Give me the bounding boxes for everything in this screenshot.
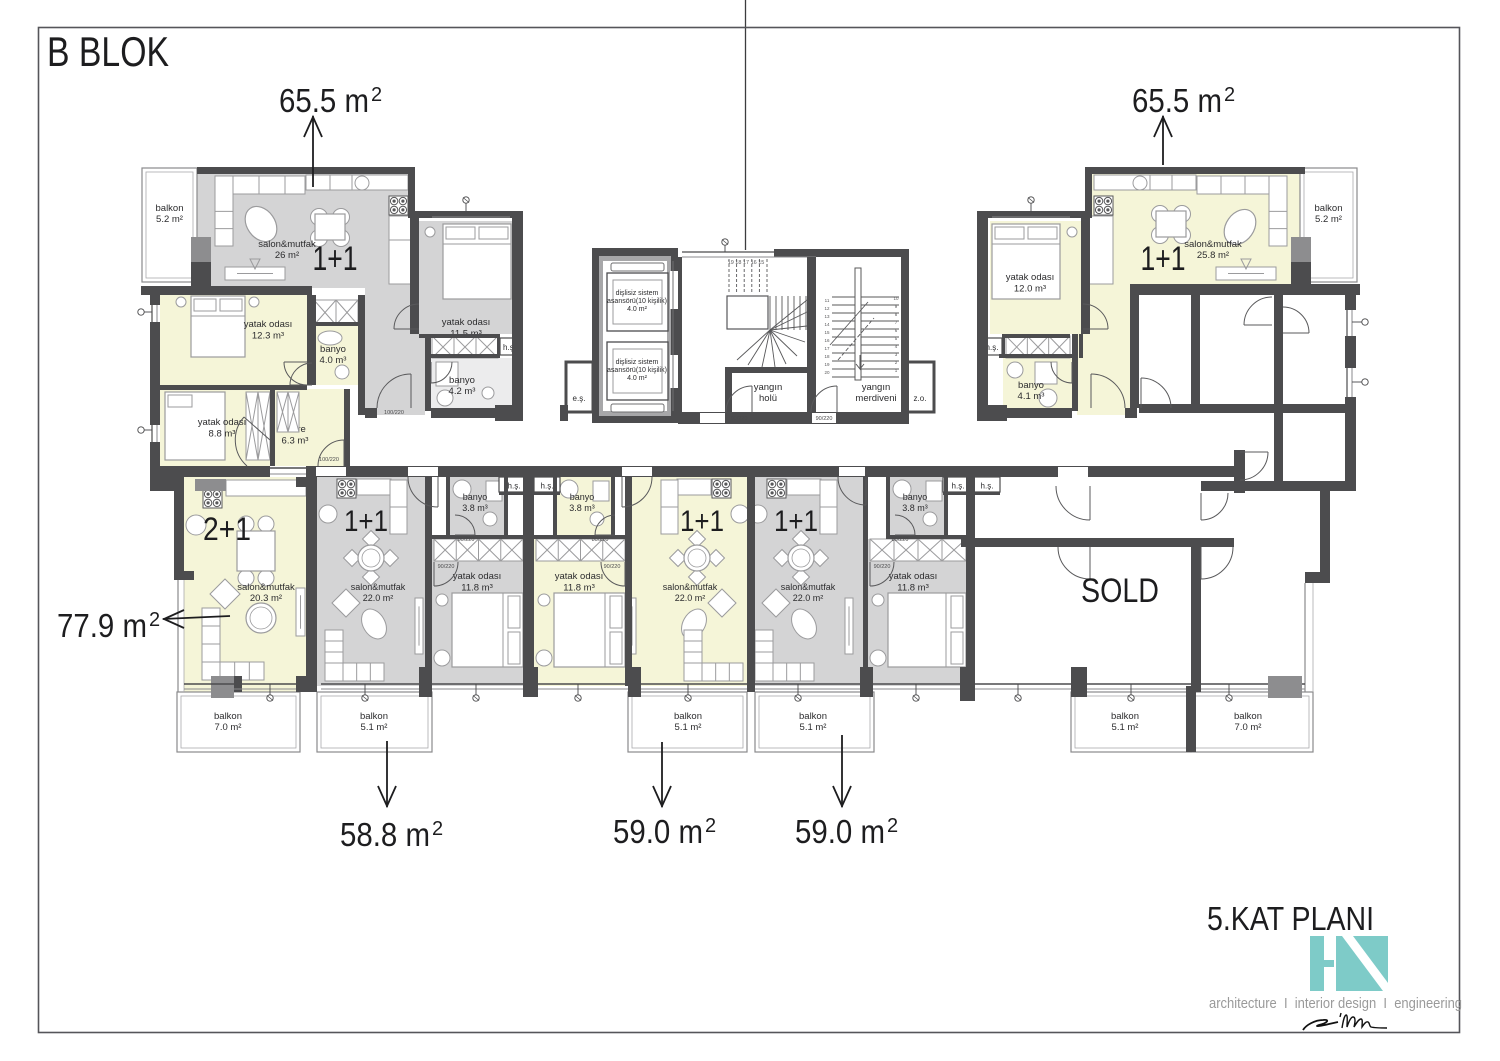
svg-text:yangın: yangın	[862, 382, 891, 393]
svg-text:26 m²: 26 m²	[275, 250, 299, 261]
svg-text:11.8 m³: 11.8 m³	[563, 583, 595, 594]
svg-text:17: 17	[824, 346, 830, 351]
svg-text:3.8 m³: 3.8 m³	[569, 503, 595, 513]
svg-text:59.0 m: 59.0 m	[795, 813, 885, 850]
svg-text:h.ş.: h.ş.	[981, 482, 994, 491]
svg-text:20.3 m²: 20.3 m²	[250, 593, 282, 604]
svg-text:20: 20	[824, 370, 830, 375]
svg-text:12.0 m³: 12.0 m³	[1014, 284, 1046, 295]
svg-text:16: 16	[824, 338, 830, 343]
svg-text:dişlisiz sistem: dişlisiz sistem	[616, 359, 659, 366]
svg-text:4.1 m³: 4.1 m³	[1018, 391, 1045, 402]
svg-text:58.8 m: 58.8 m	[340, 816, 430, 853]
svg-text:balkon: balkon	[799, 711, 827, 722]
svg-text:19 18 17 16 15: 19 18 17 16 15	[728, 260, 765, 266]
svg-text:balkon: balkon	[1234, 711, 1262, 722]
svg-text:90/220: 90/220	[731, 416, 748, 422]
svg-text:salon&mutfak: salon&mutfak	[258, 239, 316, 250]
svg-text:banyo: banyo	[570, 492, 595, 502]
svg-text:5.KAT PLANI: 5.KAT PLANI	[1207, 900, 1374, 937]
svg-text:2: 2	[432, 818, 443, 840]
svg-text:4.0 m²: 4.0 m²	[627, 306, 648, 313]
svg-text:yatak odası: yatak odası	[453, 571, 502, 582]
svg-text:B BLOK: B BLOK	[47, 28, 169, 75]
svg-text:2: 2	[1224, 84, 1235, 106]
svg-text:90/220: 90/220	[816, 416, 833, 422]
svg-text:yatak odası: yatak odası	[889, 571, 938, 582]
svg-text:salon&mutfak: salon&mutfak	[351, 582, 406, 592]
svg-text:4.0 m³: 4.0 m³	[320, 355, 347, 366]
svg-text:banyo: banyo	[320, 344, 346, 355]
svg-text:22.0 m²: 22.0 m²	[793, 593, 824, 603]
svg-text:80/220: 80/220	[892, 537, 909, 543]
svg-text:14: 14	[824, 322, 830, 327]
svg-text:12.3 m³: 12.3 m³	[252, 331, 284, 342]
svg-text:z.o.: z.o.	[914, 394, 927, 403]
svg-text:asansörü(10 kişilik): asansörü(10 kişilik)	[607, 298, 667, 305]
svg-text:architecture I interior desi: architecture I interior design I enginee…	[1209, 996, 1462, 1012]
svg-text:6.3 m³: 6.3 m³	[282, 436, 309, 447]
svg-text:balkon: balkon	[360, 711, 388, 722]
svg-text:2+1: 2+1	[203, 511, 251, 547]
svg-text:90/220: 90/220	[874, 564, 891, 570]
svg-text:5.2 m²: 5.2 m²	[156, 214, 183, 225]
svg-text:5.1 m²: 5.1 m²	[1112, 722, 1139, 733]
svg-text:salon&mutfak: salon&mutfak	[781, 582, 836, 592]
svg-text:banyo: banyo	[463, 492, 488, 502]
svg-text:salon&mutfak: salon&mutfak	[1184, 239, 1242, 250]
svg-text:11.8 m³: 11.8 m³	[461, 583, 493, 594]
svg-text:yatak odası: yatak odası	[1006, 272, 1055, 283]
svg-text:e.ş.: e.ş.	[573, 394, 586, 403]
svg-text:100/220: 100/220	[384, 410, 404, 416]
svg-text:salon&mutfak: salon&mutfak	[237, 582, 295, 593]
svg-text:5.1 m²: 5.1 m²	[361, 722, 388, 733]
svg-text:yatak odası: yatak odası	[198, 417, 247, 428]
svg-text:balkon: balkon	[1315, 203, 1343, 214]
svg-text:11.8 m³: 11.8 m³	[897, 583, 929, 594]
svg-text:h.ş.: h.ş.	[952, 482, 965, 491]
svg-text:balkon: balkon	[214, 711, 242, 722]
svg-text:18: 18	[824, 354, 830, 359]
svg-text:yatak odası: yatak odası	[244, 319, 293, 330]
svg-text:4.2 m³: 4.2 m³	[449, 386, 476, 397]
svg-text:12: 12	[824, 306, 830, 311]
svg-text:yangın: yangın	[754, 382, 783, 393]
svg-text:7.0 m²: 7.0 m²	[1235, 722, 1262, 733]
svg-text:banyo: banyo	[1018, 380, 1044, 391]
svg-text:25.8 m²: 25.8 m²	[1197, 250, 1229, 261]
svg-text:dişlisiz sistem: dişlisiz sistem	[616, 290, 659, 297]
svg-text:19: 19	[824, 362, 830, 367]
svg-text:1+1: 1+1	[774, 505, 818, 538]
svg-text:90/220: 90/220	[604, 564, 621, 570]
svg-text:8.8 m³: 8.8 m³	[209, 429, 236, 440]
svg-text:yatak odası: yatak odası	[442, 317, 491, 328]
svg-text:balkon: balkon	[156, 203, 184, 214]
svg-text:SOLD: SOLD	[1081, 572, 1159, 610]
svg-text:4.0 m²: 4.0 m²	[627, 375, 648, 382]
svg-text:80/220: 80/220	[592, 537, 609, 543]
svg-text:1+1: 1+1	[1141, 240, 1186, 278]
svg-text:1+1: 1+1	[313, 240, 358, 278]
svg-text:3.8 m³: 3.8 m³	[462, 503, 488, 513]
svg-text:10: 10	[893, 296, 899, 301]
svg-text:2: 2	[149, 609, 160, 631]
svg-text:90/220: 90/220	[438, 564, 455, 570]
svg-text:banyo: banyo	[903, 492, 928, 502]
svg-text:22.0 m²: 22.0 m²	[675, 593, 706, 603]
svg-text:15: 15	[824, 330, 830, 335]
svg-text:65.5 m: 65.5 m	[1132, 82, 1222, 119]
svg-text:merdiveni: merdiveni	[855, 393, 896, 404]
svg-text:2: 2	[371, 84, 382, 106]
svg-text:h.ş.: h.ş.	[508, 482, 521, 491]
svg-text:1+1: 1+1	[344, 505, 388, 538]
svg-text:asansörü(10 kişilik): asansörü(10 kişilik)	[607, 367, 667, 374]
svg-text:80/220: 80/220	[458, 537, 475, 543]
svg-text:22.0 m²: 22.0 m²	[363, 593, 394, 603]
svg-text:5.1 m²: 5.1 m²	[800, 722, 827, 733]
svg-text:65.5 m: 65.5 m	[279, 82, 369, 119]
svg-text:5.1 m²: 5.1 m²	[675, 722, 702, 733]
svg-text:59.0 m: 59.0 m	[613, 813, 703, 850]
svg-text:3.8 m³: 3.8 m³	[902, 503, 928, 513]
svg-text:5.2 m²: 5.2 m²	[1315, 214, 1342, 225]
svg-text:banyo: banyo	[449, 375, 475, 386]
svg-text:1+1: 1+1	[680, 505, 724, 538]
svg-text:2: 2	[887, 815, 898, 837]
svg-text:7.0 m²: 7.0 m²	[215, 722, 242, 733]
svg-text:yatak odası: yatak odası	[555, 571, 604, 582]
svg-text:holü: holü	[759, 393, 777, 404]
svg-text:balkon: balkon	[1111, 711, 1139, 722]
svg-text:salon&mutfak: salon&mutfak	[663, 582, 718, 592]
svg-text:2: 2	[705, 815, 716, 837]
svg-text:11: 11	[825, 298, 830, 303]
svg-text:77.9 m: 77.9 m	[57, 607, 147, 644]
svg-text:13: 13	[824, 314, 830, 319]
svg-text:h.ş.: h.ş.	[541, 482, 554, 491]
svg-text:100/220: 100/220	[319, 457, 339, 463]
svg-text:balkon: balkon	[674, 711, 702, 722]
